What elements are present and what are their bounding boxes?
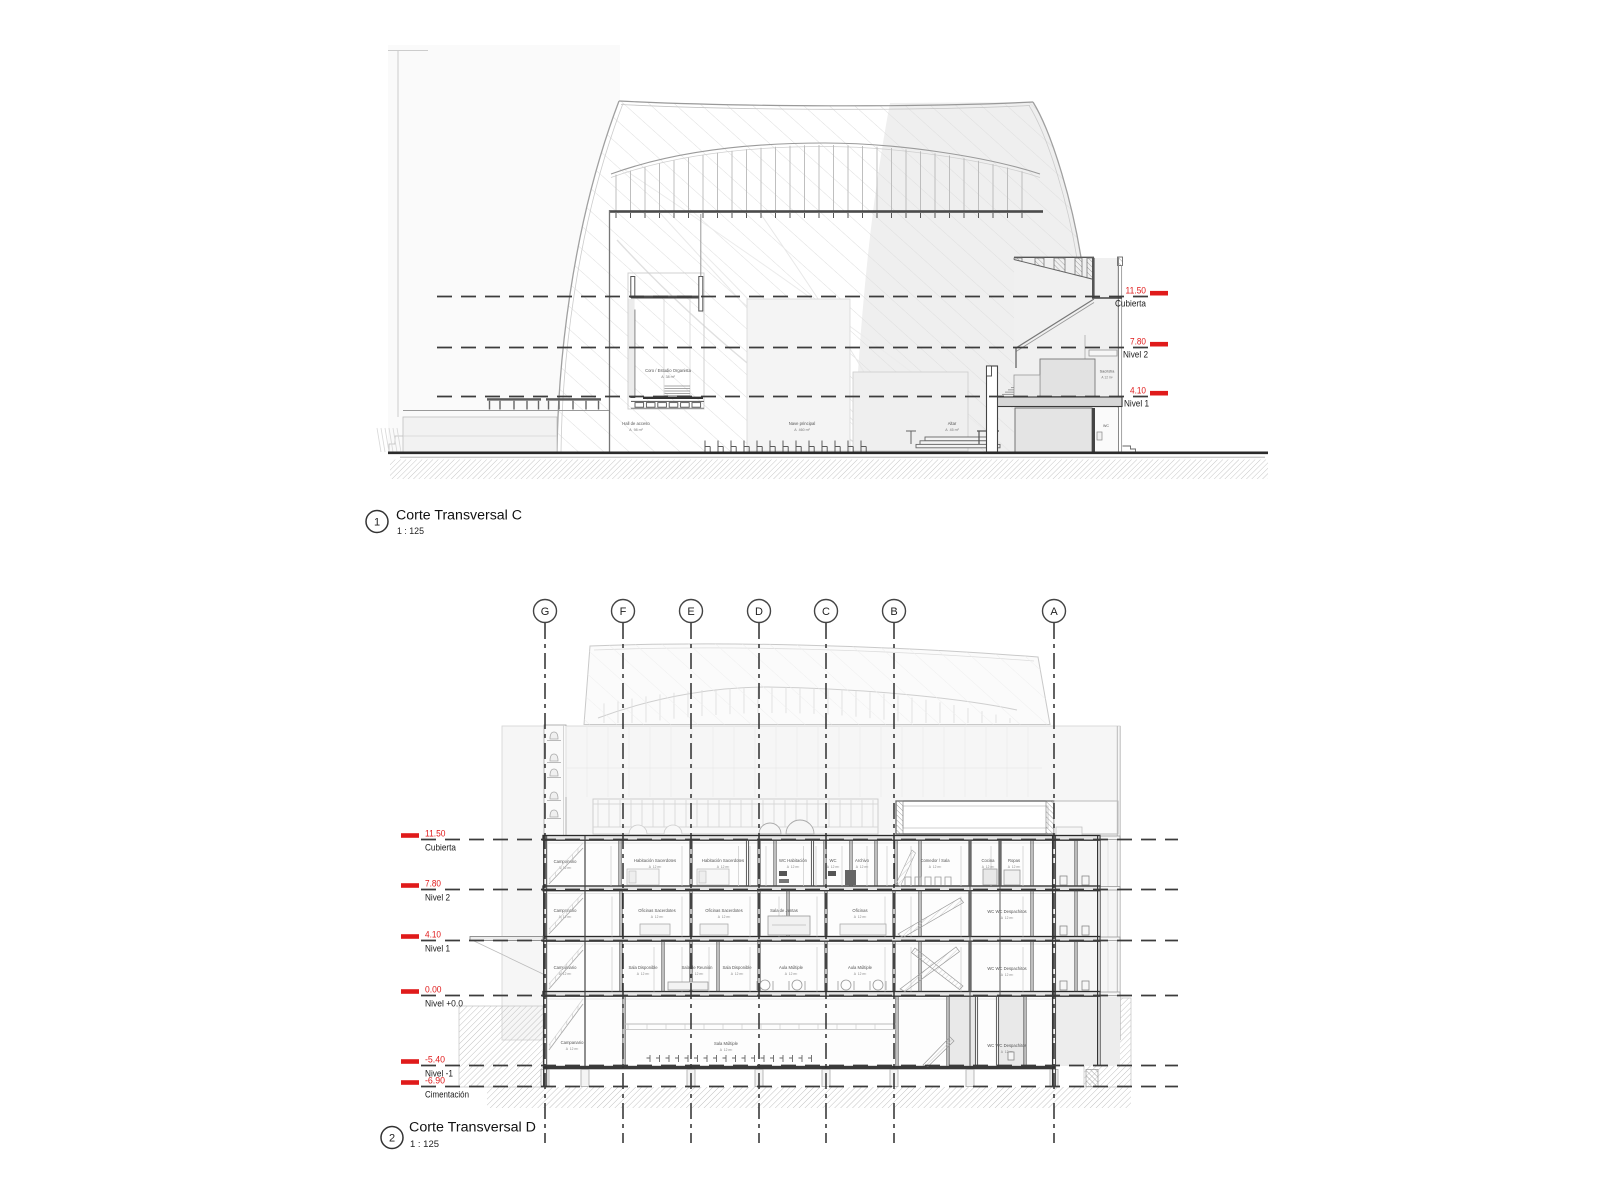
svg-text:Corte Transversal D: Corte Transversal D — [409, 1120, 536, 1135]
svg-text:Nivel 2: Nivel 2 — [425, 893, 450, 903]
svg-text:Aula Múltiple: Aula Múltiple — [779, 965, 804, 970]
svg-text:Cubierta: Cubierta — [425, 843, 456, 853]
svg-text:Nave principal: Nave principal — [789, 421, 816, 426]
svg-text:Cocina: Cocina — [981, 858, 995, 863]
svg-text:WC WC Despachitos: WC WC Despachitos — [987, 1043, 1026, 1048]
svg-text:11.50: 11.50 — [1126, 286, 1147, 296]
svg-text:C: C — [822, 606, 830, 618]
svg-text:Nivel 2: Nivel 2 — [1123, 350, 1148, 360]
svg-text:Cubierta: Cubierta — [1115, 299, 1146, 309]
svg-text:Sacristía: Sacristía — [1100, 370, 1116, 374]
svg-text:A 38 m²: A 38 m² — [661, 375, 675, 379]
svg-text:Sala de Juntas: Sala de Juntas — [770, 908, 798, 913]
svg-text:Sala Disponible: Sala Disponible — [628, 965, 658, 970]
svg-text:Nivel +0.0: Nivel +0.0 — [425, 999, 463, 1009]
svg-text:E: E — [687, 606, 694, 618]
svg-text:A 12 m²: A 12 m² — [1008, 865, 1021, 869]
svg-text:-5.40: -5.40 — [425, 1055, 445, 1065]
svg-text:A 12 m²: A 12 m² — [720, 1048, 733, 1052]
svg-text:A 12 m²: A 12 m² — [856, 865, 869, 869]
svg-text:A 12 m²: A 12 m² — [854, 972, 867, 976]
svg-text:WC: WC — [830, 858, 837, 863]
svg-text:Sala de Reunión: Sala de Reunión — [682, 965, 714, 970]
svg-text:2: 2 — [389, 1133, 395, 1145]
svg-text:11.50: 11.50 — [425, 829, 446, 839]
svg-text:A 460 m²: A 460 m² — [794, 428, 810, 432]
svg-text:A 12 m²: A 12 m² — [1101, 376, 1112, 380]
svg-text:7.80: 7.80 — [1130, 337, 1146, 347]
svg-text:1: 1 — [374, 517, 380, 529]
svg-text:WC Habitación: WC Habitación — [779, 858, 808, 863]
svg-text:Hall de acceso: Hall de acceso — [622, 421, 650, 426]
svg-text:Oficinas Sacerdotes: Oficinas Sacerdotes — [705, 908, 742, 913]
svg-text:0.00: 0.00 — [425, 985, 442, 995]
svg-text:A 12 m²: A 12 m² — [566, 1047, 579, 1051]
svg-text:A 12 m²: A 12 m² — [649, 865, 662, 869]
svg-text:D: D — [755, 606, 763, 618]
svg-text:A 12 m²: A 12 m² — [718, 915, 731, 919]
svg-text:A 12 m²: A 12 m² — [731, 972, 744, 976]
svg-text:B: B — [890, 606, 897, 618]
svg-text:A 12 m²: A 12 m² — [651, 915, 664, 919]
svg-text:A 45 m²: A 45 m² — [945, 428, 959, 432]
svg-text:1 : 125: 1 : 125 — [410, 1139, 439, 1149]
svg-text:WC: WC — [1103, 424, 1109, 428]
svg-text:A: A — [1050, 606, 1058, 618]
svg-text:A 12 m²: A 12 m² — [787, 865, 800, 869]
svg-text:Campanario: Campanario — [554, 908, 577, 913]
svg-text:G: G — [541, 606, 550, 618]
svg-text:A 12 m²: A 12 m² — [785, 972, 798, 976]
svg-text:Sala Múltiple: Sala Múltiple — [714, 1041, 739, 1046]
svg-text:Oficinas Sacerdotes: Oficinas Sacerdotes — [638, 908, 675, 913]
svg-text:A 12 m²: A 12 m² — [982, 865, 995, 869]
svg-text:Corte Transversal C: Corte Transversal C — [396, 508, 522, 523]
svg-text:Habitación Sacerdotes: Habitación Sacerdotes — [702, 858, 744, 863]
svg-text:A 12 m²: A 12 m² — [827, 865, 840, 869]
svg-text:WC WC Despachitos: WC WC Despachitos — [987, 909, 1026, 914]
svg-text:Nivel 1: Nivel 1 — [1124, 399, 1149, 409]
svg-text:WC WC Despachitos: WC WC Despachitos — [987, 966, 1026, 971]
svg-text:Nivel 1: Nivel 1 — [425, 944, 450, 954]
svg-text:1 : 125: 1 : 125 — [397, 526, 424, 536]
svg-text:A 12 m²: A 12 m² — [929, 865, 942, 869]
svg-text:Altar: Altar — [948, 421, 957, 426]
svg-text:4.10: 4.10 — [1130, 386, 1146, 396]
svg-text:4.10: 4.10 — [425, 930, 441, 940]
svg-text:Archivo: Archivo — [855, 858, 870, 863]
svg-text:Oficinas: Oficinas — [852, 908, 867, 913]
svg-text:Campanario: Campanario — [561, 1040, 584, 1045]
svg-text:Aula Múltiple: Aula Múltiple — [848, 965, 873, 970]
svg-text:Habitación Sacerdotes: Habitación Sacerdotes — [634, 858, 676, 863]
svg-text:Comedor / Sala: Comedor / Sala — [920, 858, 950, 863]
svg-text:Coro / Estudio Organista: Coro / Estudio Organista — [645, 368, 692, 373]
svg-text:A 98 m²: A 98 m² — [629, 428, 643, 432]
svg-text:Cimentación: Cimentación — [425, 1090, 469, 1100]
svg-text:-6.90: -6.90 — [425, 1076, 445, 1086]
svg-text:F: F — [620, 606, 627, 618]
svg-text:A 12 m²: A 12 m² — [854, 915, 867, 919]
svg-text:Sala Disponible: Sala Disponible — [722, 965, 752, 970]
svg-text:A 12 m²: A 12 m² — [1001, 916, 1014, 920]
svg-text:7.80: 7.80 — [425, 879, 441, 889]
svg-text:A 12 m²: A 12 m² — [691, 972, 704, 976]
svg-text:Ropas: Ropas — [1008, 858, 1020, 863]
svg-text:A 12 m²: A 12 m² — [717, 865, 730, 869]
svg-text:A 12 m²: A 12 m² — [637, 972, 650, 976]
svg-text:A 12 m²: A 12 m² — [1001, 973, 1014, 977]
